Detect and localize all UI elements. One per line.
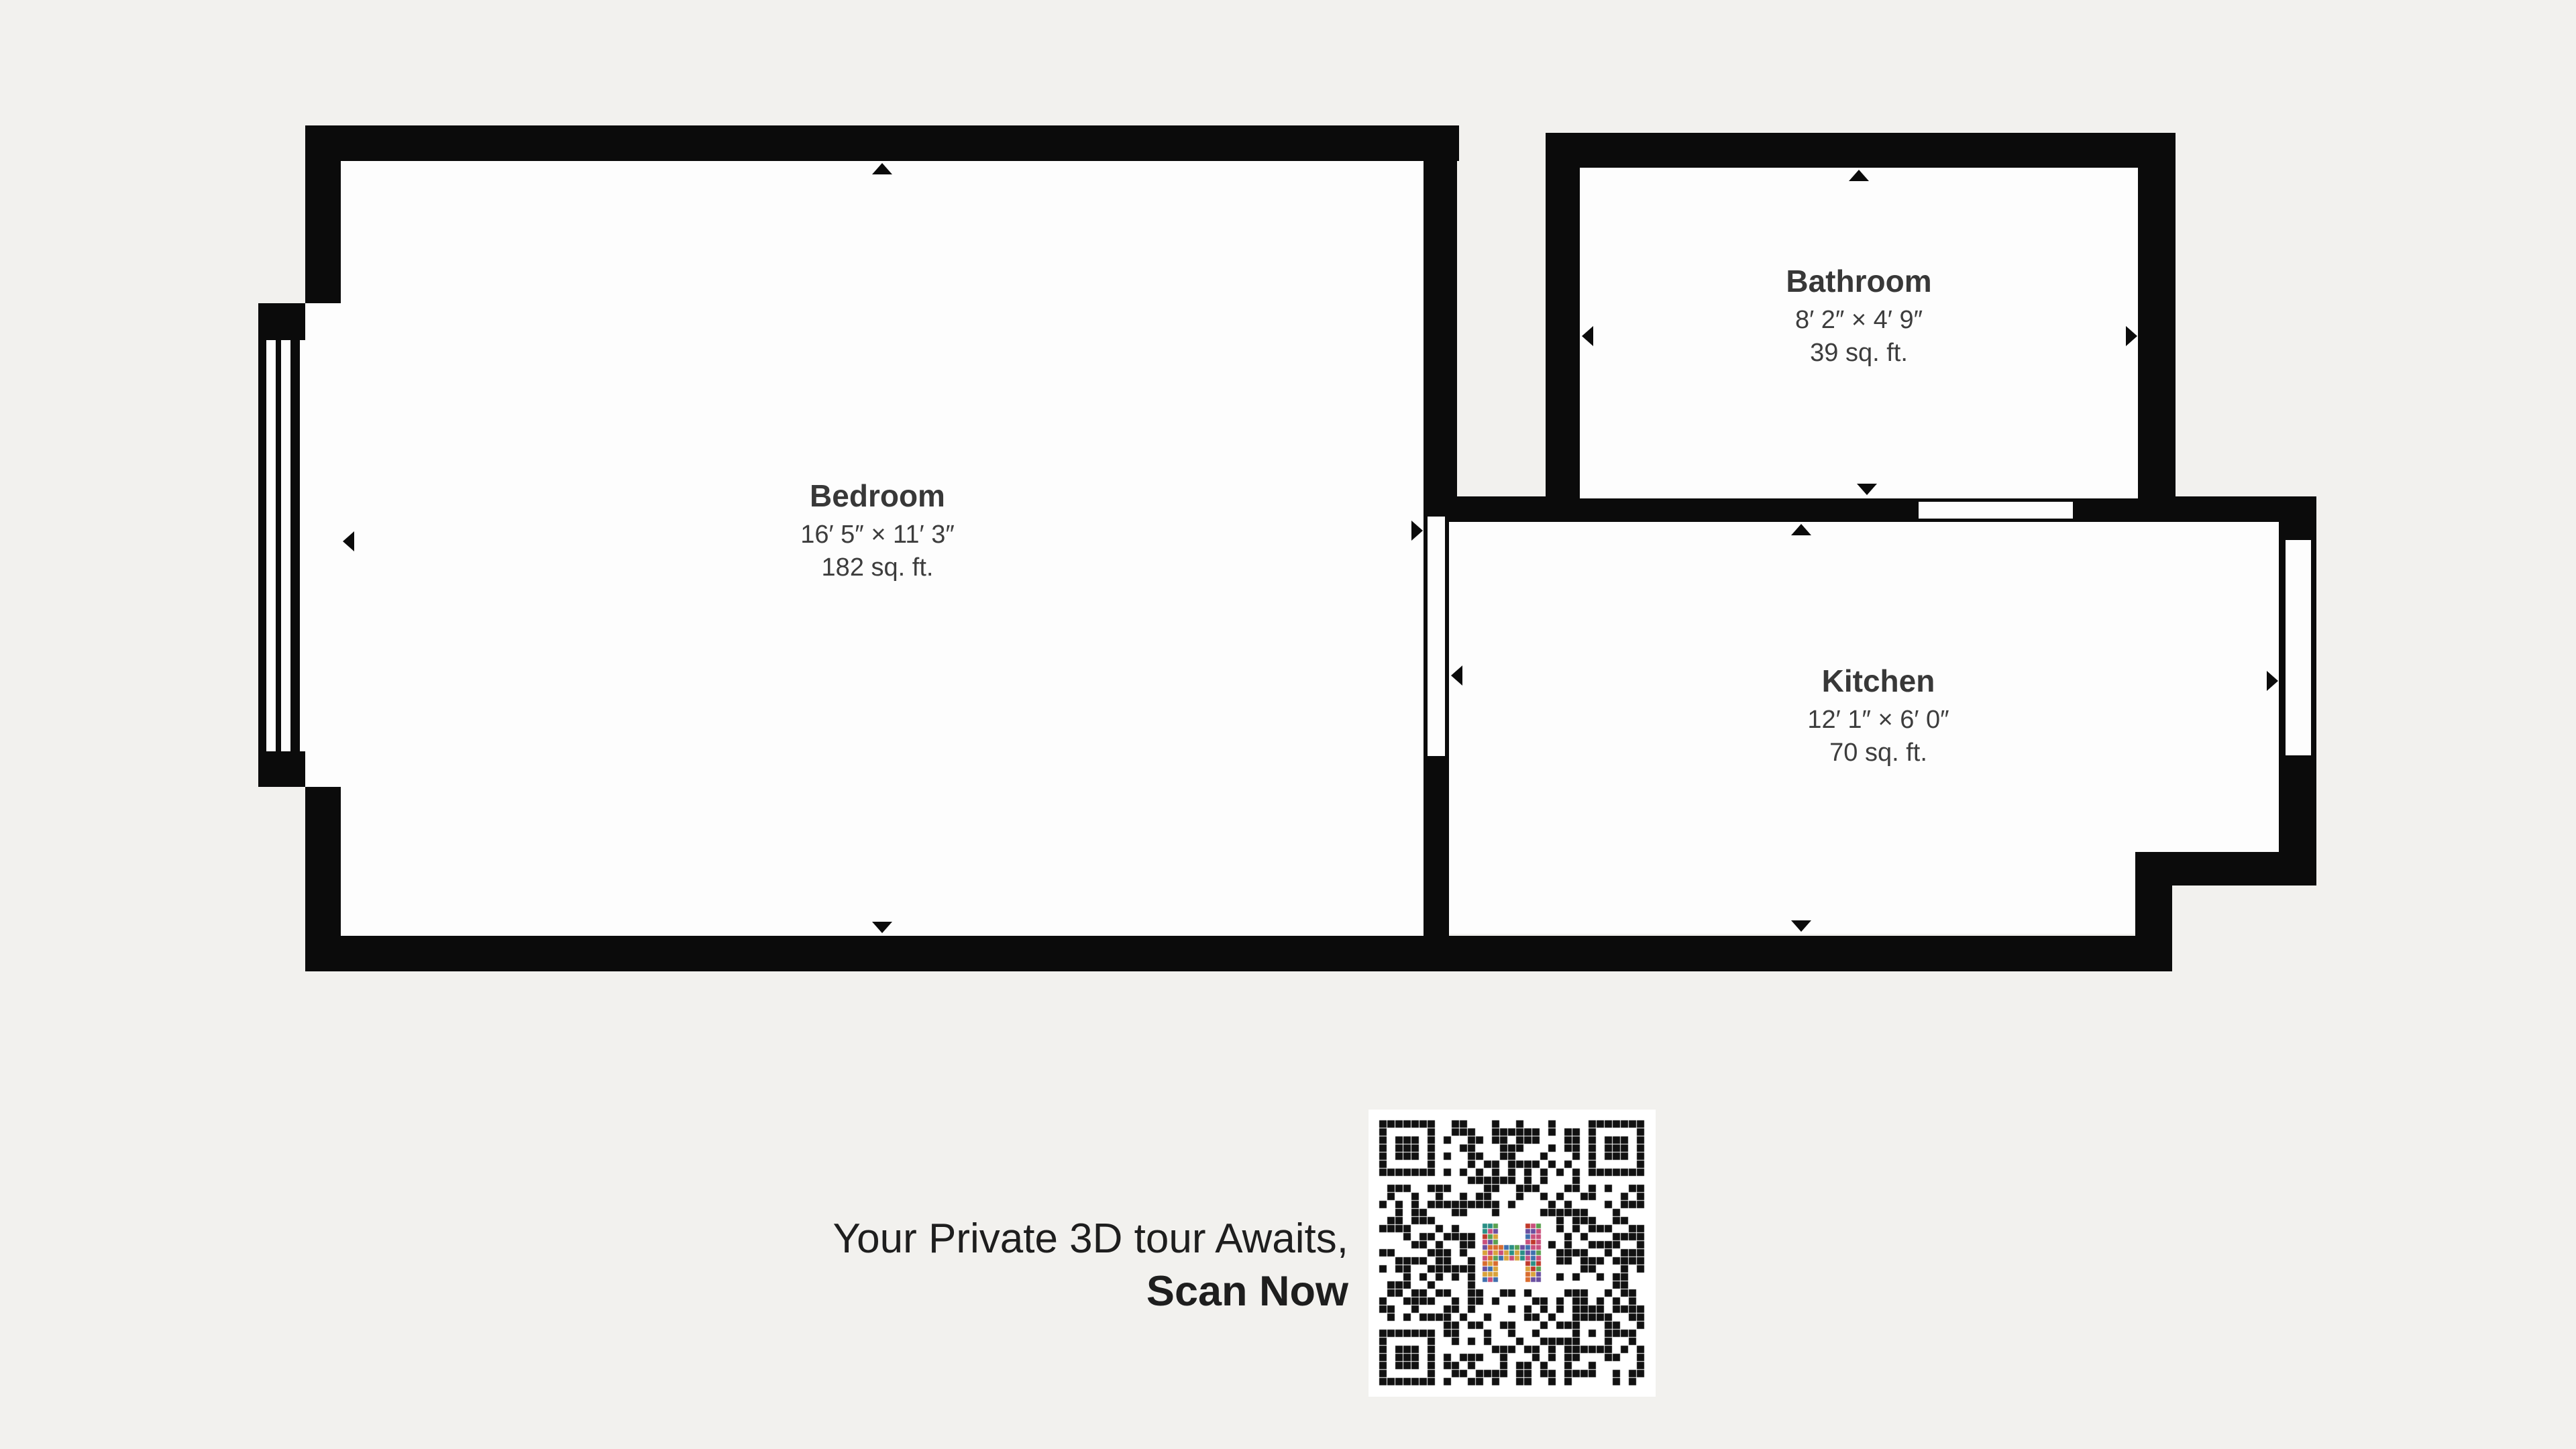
bathroom-wall-top <box>1546 133 2176 168</box>
kitchen-window <box>2286 540 2311 755</box>
cta-text: Your Private 3D tour Awaits, <box>833 1213 1348 1265</box>
bedroom-window-frame-outer <box>258 340 266 751</box>
bedroom-measure-arrow-up-icon <box>872 163 892 174</box>
bedroom-label: Bedroom 16′ 5″ × 11′ 3″ 182 sq. ft. <box>609 476 1146 584</box>
bathroom-dimensions: 8′ 2″ × 4′ 9″ <box>1591 303 2127 337</box>
floor-plan-page: Bedroom 16′ 5″ × 11′ 3″ 182 sq. ft. Bath… <box>0 0 2576 1449</box>
bedroom-measure-arrow-left-icon <box>343 531 354 551</box>
bedroom-wall-top <box>305 125 1459 161</box>
bathroom-wall-left <box>1546 168 1580 498</box>
kitchen-name: Kitchen <box>1610 661 2147 700</box>
kitchen-notch-wall-left <box>2135 852 2172 971</box>
bedroom-measure-arrow-right-icon <box>1411 521 1423 541</box>
kitchen-measure-arrow-right-icon <box>2267 671 2278 691</box>
building-wall-bottom <box>305 936 2172 971</box>
bathroom-wall-right <box>2138 168 2176 498</box>
bathroom-label: Bathroom 8′ 2″ × 4′ 9″ 39 sq. ft. <box>1591 262 2127 369</box>
bedroom-area: 182 sq. ft. <box>609 551 1146 584</box>
bedroom-wall-left-upper <box>305 161 341 303</box>
scan-cta: Your Private 3D tour Awaits, Scan Now <box>833 1213 1348 1318</box>
kitchen-notch-exterior <box>2172 885 2316 971</box>
bathroom-measure-arrow-down-icon <box>1857 484 1877 495</box>
kitchen-measure-arrow-left-icon <box>1451 665 1462 686</box>
bathroom-wall-bottom <box>1546 498 2176 522</box>
bedroom-measure-arrow-down-icon <box>872 922 892 933</box>
kitchen-measure-arrow-up-icon <box>1791 524 1811 535</box>
qr-code <box>1368 1110 1656 1397</box>
door-jamb-right <box>1445 517 1449 756</box>
cta-scan-now: Scan Now <box>833 1265 1348 1318</box>
bathroom-door-opening <box>1919 502 2073 519</box>
kitchen-area: 70 sq. ft. <box>1610 737 2147 769</box>
bedroom-wall-right-lower <box>1424 756 1449 936</box>
bedroom-name: Bedroom <box>609 476 1146 515</box>
bathroom-area: 39 sq. ft. <box>1591 337 2127 369</box>
bedroom-window-cap-bottom <box>258 751 305 787</box>
bathroom-measure-arrow-right-icon <box>2126 326 2137 346</box>
kitchen-measure-arrow-down-icon <box>1791 920 1811 932</box>
bedroom-wall-left-lower <box>305 787 341 938</box>
bedroom-window-frame-inner <box>290 340 300 751</box>
bathroom-measure-arrow-up-icon <box>1849 170 1869 181</box>
bedroom-kitchen-door-opening <box>1428 517 1445 756</box>
bedroom-window-cap-top <box>258 303 305 340</box>
bedroom-window-frame-mid <box>276 340 281 751</box>
bathroom-name: Bathroom <box>1591 262 2127 301</box>
kitchen-dimensions: 12′ 1″ × 6′ 0″ <box>1610 703 2147 737</box>
bedroom-wall-right-upper <box>1424 161 1457 517</box>
kitchen-label: Kitchen 12′ 1″ × 6′ 0″ 70 sq. ft. <box>1610 661 2147 769</box>
bedroom-dimensions: 16′ 5″ × 11′ 3″ <box>609 518 1146 551</box>
